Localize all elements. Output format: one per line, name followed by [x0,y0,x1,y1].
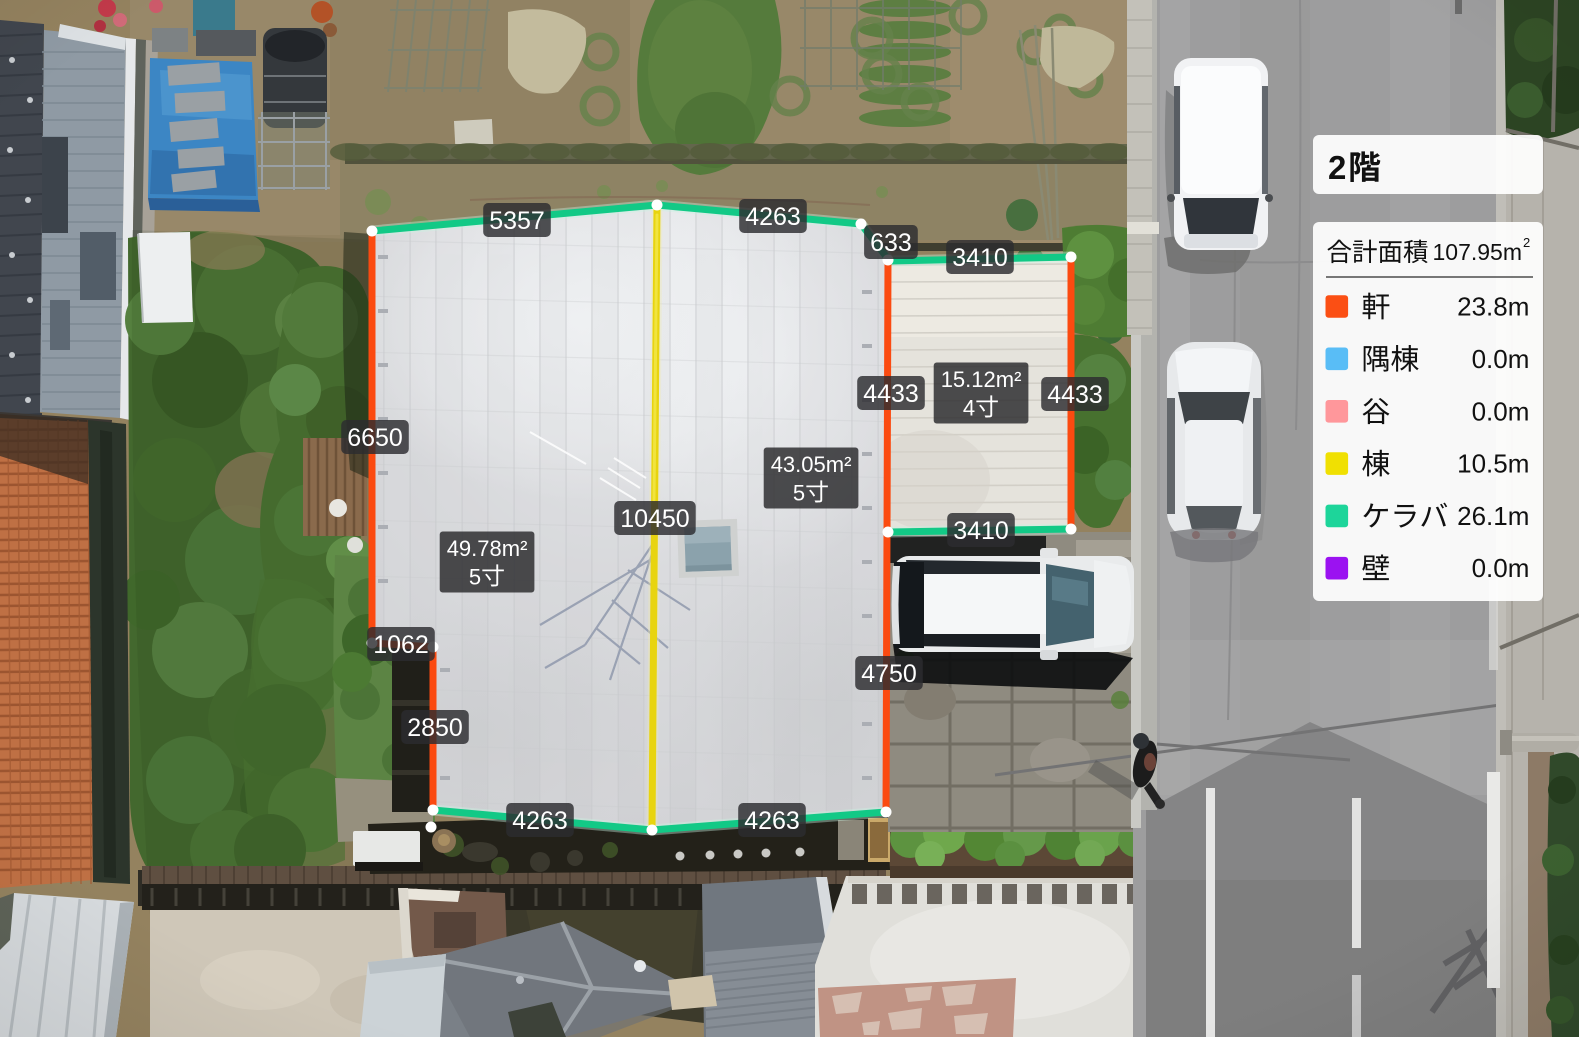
svg-text:0.0m: 0.0m [1472,396,1530,426]
svg-text:43.05m²: 43.05m² [771,452,852,477]
svg-text:4433: 4433 [863,380,919,408]
svg-text:26.1m: 26.1m [1457,501,1529,531]
svg-text:3410: 3410 [952,244,1008,272]
svg-text:4263: 4263 [745,203,801,231]
svg-text:2850: 2850 [407,714,463,742]
svg-text:6650: 6650 [347,424,403,452]
svg-text:107.95m: 107.95m [1432,239,1522,265]
svg-text:10450: 10450 [620,505,690,533]
svg-text:15.12m²: 15.12m² [941,367,1022,392]
svg-text:2: 2 [1328,149,1346,186]
svg-text:4263: 4263 [744,807,800,835]
svg-text:4263: 4263 [512,807,568,835]
svg-text:49.78m²: 49.78m² [447,536,528,561]
svg-text:633: 633 [870,229,912,257]
svg-text:5: 5 [793,481,805,506]
svg-text:3410: 3410 [953,517,1009,545]
svg-text:10.5m: 10.5m [1457,449,1529,479]
svg-text:4750: 4750 [861,660,917,688]
svg-text:4433: 4433 [1047,381,1103,409]
svg-text:0.0m: 0.0m [1472,344,1530,374]
svg-text:4: 4 [963,396,975,421]
svg-text:2: 2 [1523,235,1530,250]
svg-text:0.0m: 0.0m [1472,553,1530,583]
svg-text:5: 5 [469,565,481,590]
svg-text:5357: 5357 [489,207,545,235]
svg-text:23.8m: 23.8m [1457,292,1529,322]
svg-text:1062: 1062 [373,631,429,659]
